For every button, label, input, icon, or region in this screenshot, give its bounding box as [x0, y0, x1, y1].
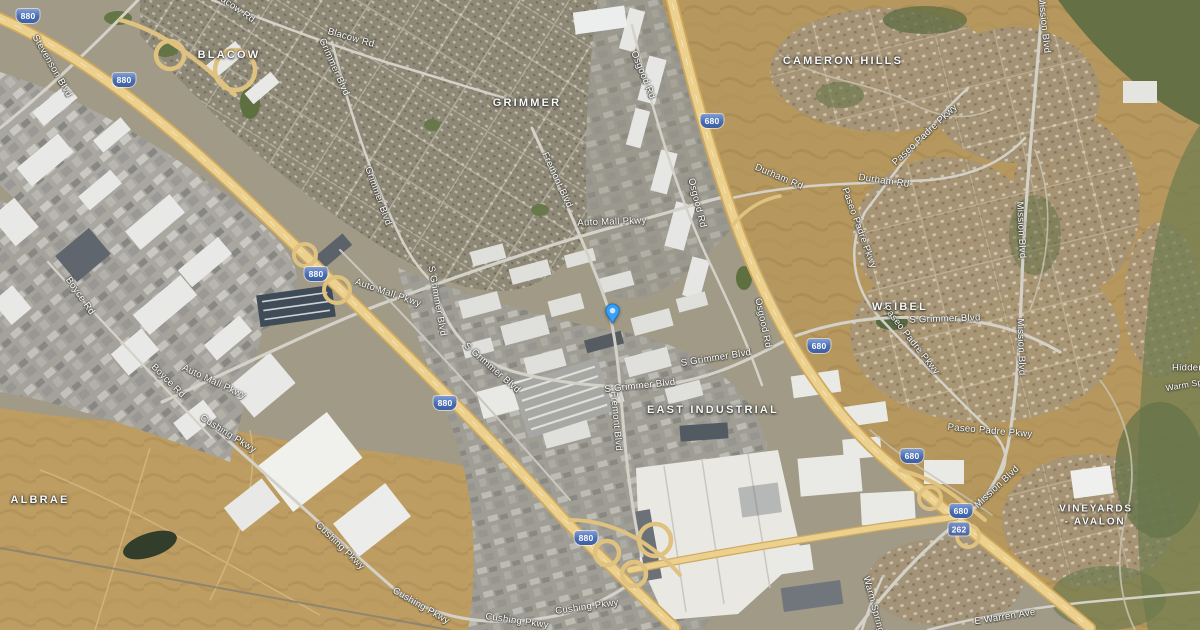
place-pin-icon[interactable]: [605, 303, 620, 324]
road-label-auto-mall-pkwy: Auto Mall Pkwy: [354, 277, 423, 310]
road-label-boyce-rd: Boyce Rd: [63, 275, 97, 317]
road-label-fremont-blvd: Fremont Blvd: [608, 391, 624, 452]
road-label-osgood-rd: Osgood Rd: [752, 297, 773, 349]
route-shield-ca262: 262: [949, 523, 970, 536]
road-label-cushing-pkwy: Cushing Pkwy: [485, 611, 550, 630]
road-label-auto-mall-pkwy: Auto Mall Pkwy: [577, 215, 646, 228]
map-labels-layer: BLACOW GRIMMER CAMERON HILLS WEIBEL EAST…: [0, 0, 1200, 630]
road-label-s-grimmer-blvd: S Grimmer Blvd: [604, 377, 676, 395]
neighborhood-label-albrae: ALBRAE: [10, 494, 69, 506]
route-shield-i880: 880: [575, 531, 598, 545]
road-label-cushing-pkwy: Cushing Pkwy: [198, 412, 258, 455]
road-label-blacow-rd: Blacow Rd: [326, 26, 375, 50]
road-label-e-warren-ave: E Warren Ave: [974, 607, 1037, 628]
road-label-mission-blvd: Mission Blvd: [972, 464, 1021, 511]
road-label-paseo-padre-pkwy: Paseo Padre Pkwy: [839, 186, 878, 270]
neighborhood-label-blacow: BLACOW: [198, 49, 261, 61]
road-label-paseo-padre-pkwy: Paseo Padre Pkwy: [890, 102, 960, 168]
neighborhood-label-weibel: WEIBEL: [872, 301, 928, 313]
road-label-grimmer-blvd: Grimmer Blvd: [316, 37, 351, 98]
road-label-durham-rd: Durham Rd: [753, 162, 805, 192]
road-label-paseo-padre-pkwy: Paseo Padre Pkwy: [947, 422, 1033, 440]
road-label-cushing-pkwy: Cushing Pkwy: [555, 597, 620, 617]
satellite-map-canvas[interactable]: BLACOW GRIMMER CAMERON HILLS WEIBEL EAST…: [0, 0, 1200, 630]
route-shield-i880: 880: [305, 267, 328, 281]
route-shield-i880: 880: [17, 9, 40, 23]
road-label-s-grimmer-blvd: S Grimmer Blvd: [425, 265, 448, 337]
neighborhood-label-east-industrial: EAST INDUSTRIAL: [647, 404, 779, 416]
road-label-auto-mall-pkwy: Auto Mall Pkwy: [180, 362, 247, 401]
route-shield-i680: 680: [901, 449, 924, 463]
road-label-osgood-rd: Osgood Rd: [628, 49, 657, 100]
route-shield-i680: 680: [701, 114, 724, 128]
route-shield-i880: 880: [113, 73, 136, 87]
road-label-hidden: Hidden: [1172, 363, 1200, 374]
road-label-cushing-pkwy: Cushing Pkwy: [391, 585, 452, 626]
road-label-warm-sp: Warm Sp: [1165, 377, 1200, 393]
road-label-s-grimmer-blvd: S Grimmer Blvd: [462, 340, 523, 395]
road-label-s-grimmer-blvd: S Grimmer Blvd: [909, 312, 981, 325]
road-label-mission-blvd: Mission Blvd: [1036, 0, 1053, 54]
road-label-stevenson-blvd: Stevenson Blvd: [30, 33, 75, 99]
neighborhood-label-grimmer: GRIMMER: [493, 97, 562, 109]
road-label-cushing-pkwy: Cushing Pkwy: [313, 520, 367, 572]
neighborhood-label-vineyards: VINEYARDS: [1059, 504, 1133, 515]
road-label-mission-blvd: Mission Blvd: [1015, 318, 1028, 375]
route-shield-i680: 680: [950, 504, 973, 518]
road-label-s-grimmer-blvd: S Grimmer Blvd: [680, 347, 752, 369]
road-label-osgood-rd: Osgood Rd: [686, 177, 709, 229]
road-label-mission-blvd: Mission Blvd: [1014, 201, 1028, 258]
road-label-fremont-blvd: Fremont Blvd: [539, 150, 574, 209]
road-label-warm-springs-blvd: Warm Springs Blvd: [861, 575, 894, 630]
neighborhood-label-cameron-hills: CAMERON HILLS: [783, 55, 903, 67]
road-label-grimmer-blvd: Grimmer Blvd: [362, 165, 393, 227]
route-shield-i680: 680: [808, 339, 831, 353]
neighborhood-label-avalon: - AVALON: [1065, 517, 1126, 528]
route-shield-i880: 880: [434, 396, 457, 410]
road-label-blacow-rd: Blacow Rd: [211, 0, 257, 25]
road-label-durham-rd: Durham Rd: [858, 172, 910, 190]
